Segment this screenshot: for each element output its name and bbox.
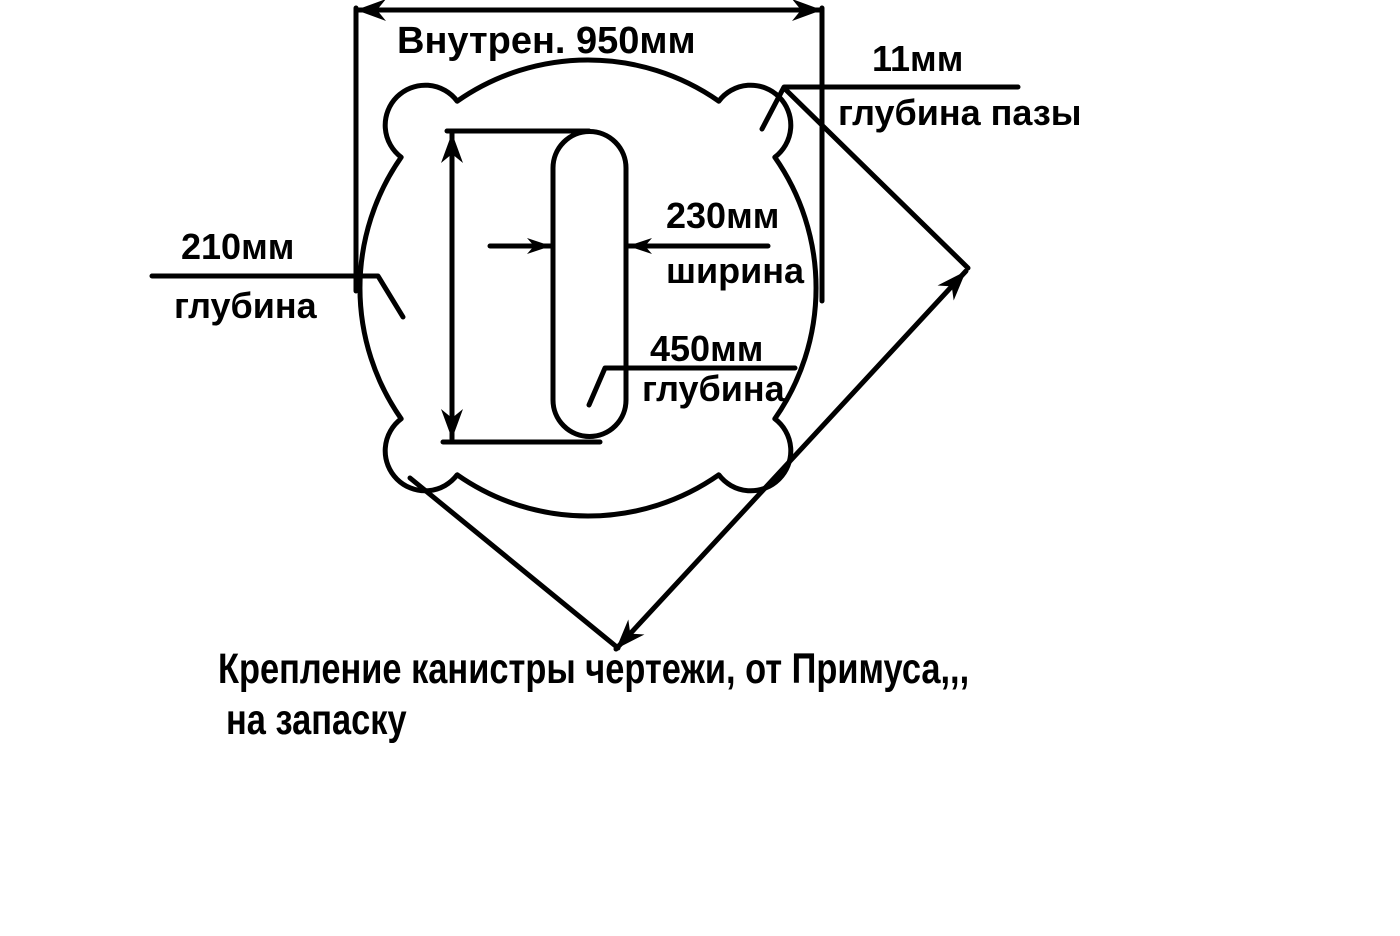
drawing-linework [0, 0, 1400, 936]
label-slot-width-desc: ширина [666, 253, 804, 289]
label-left-depth-desc: глубина [174, 288, 317, 324]
caption-line-1: Крепление канистры чертежи, от Примуса,,… [218, 648, 969, 691]
label-left-depth-value: 210мм [181, 229, 294, 265]
label-groove-depth-desc: глубина пазы [838, 95, 1082, 131]
label-slot-width-value: 230мм [666, 198, 779, 234]
label-slot-depth-desc: глубина [642, 371, 785, 407]
caption-line-2: на запаску [226, 699, 407, 742]
label-groove-depth-value: 11мм [872, 41, 963, 77]
label-inner-width: Внутрен. 950мм [397, 22, 696, 60]
technical-drawing-canvas: Внутрен. 950мм 11мм глубина пазы 230мм ш… [0, 0, 1400, 936]
slot-outline [553, 132, 626, 437]
label-slot-depth-value: 450мм [650, 331, 763, 367]
